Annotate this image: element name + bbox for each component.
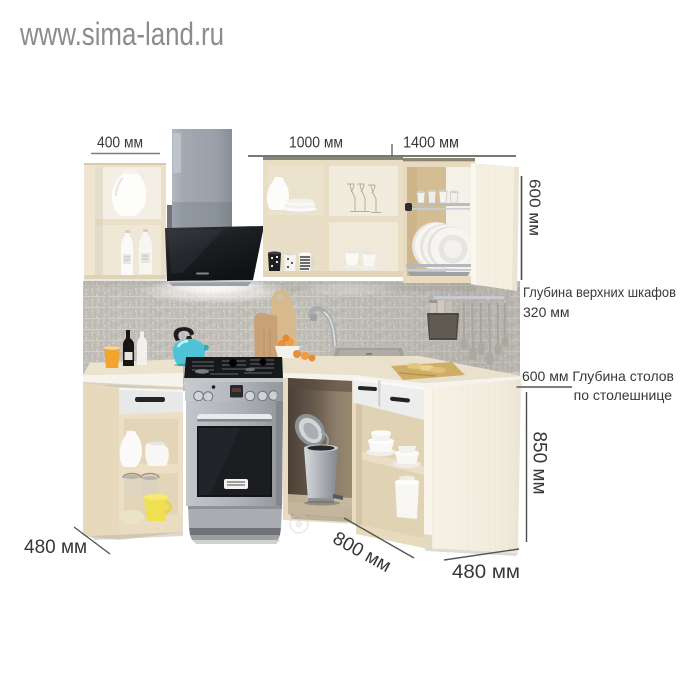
svg-text:1400 мм: 1400 мм [403, 135, 459, 152]
svg-text:600 мм Глубина столов: 600 мм Глубина столов [522, 368, 674, 384]
svg-text:1000 мм: 1000 мм [289, 135, 343, 152]
svg-text:480 мм: 480 мм [24, 537, 87, 558]
svg-text:480 мм: 480 мм [452, 561, 520, 583]
svg-text:по столешнице: по столешнице [574, 387, 673, 403]
svg-text:Глубина верхних шкафов: Глубина верхних шкафов [523, 284, 676, 300]
svg-text:850 мм: 850 мм [529, 431, 550, 494]
svg-text:600 мм: 600 мм [526, 179, 543, 236]
svg-text:400 мм: 400 мм [97, 135, 143, 152]
svg-text:320 мм: 320 мм [523, 304, 570, 320]
svg-text:www.sima-land.ru: www.sima-land.ru [19, 16, 224, 52]
